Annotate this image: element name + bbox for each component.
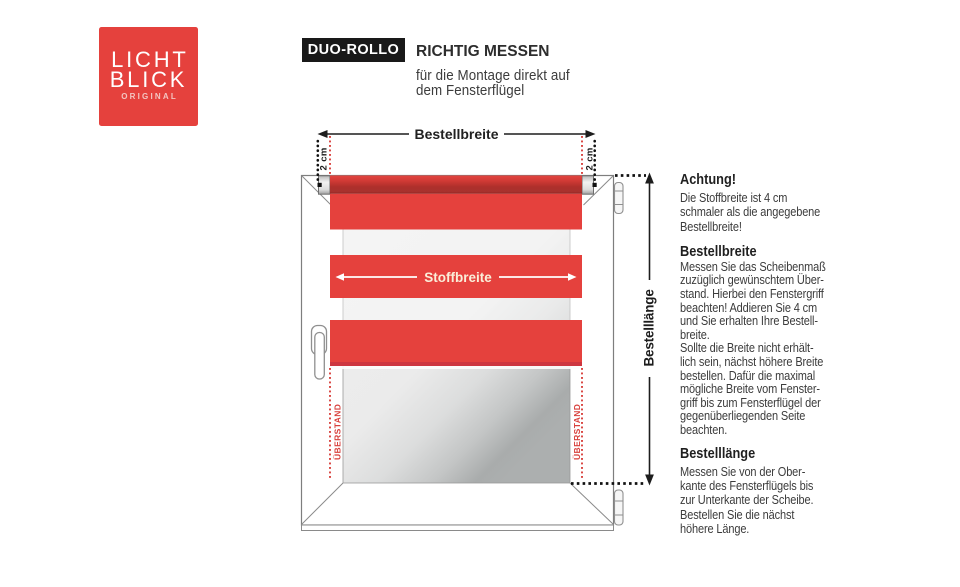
svg-text:Bestelllänge: Bestelllänge <box>642 289 657 367</box>
svg-text:2 cm: 2 cm <box>319 147 330 170</box>
svg-text:Stoffbreite: Stoffbreite <box>424 270 492 285</box>
svg-text:2 cm: 2 cm <box>585 147 596 170</box>
svg-text:ÜBERSTAND: ÜBERSTAND <box>572 404 582 460</box>
svg-text:ÜBERSTAND: ÜBERSTAND <box>333 404 343 460</box>
svg-text:Bestellbreite: Bestellbreite <box>414 126 498 142</box>
